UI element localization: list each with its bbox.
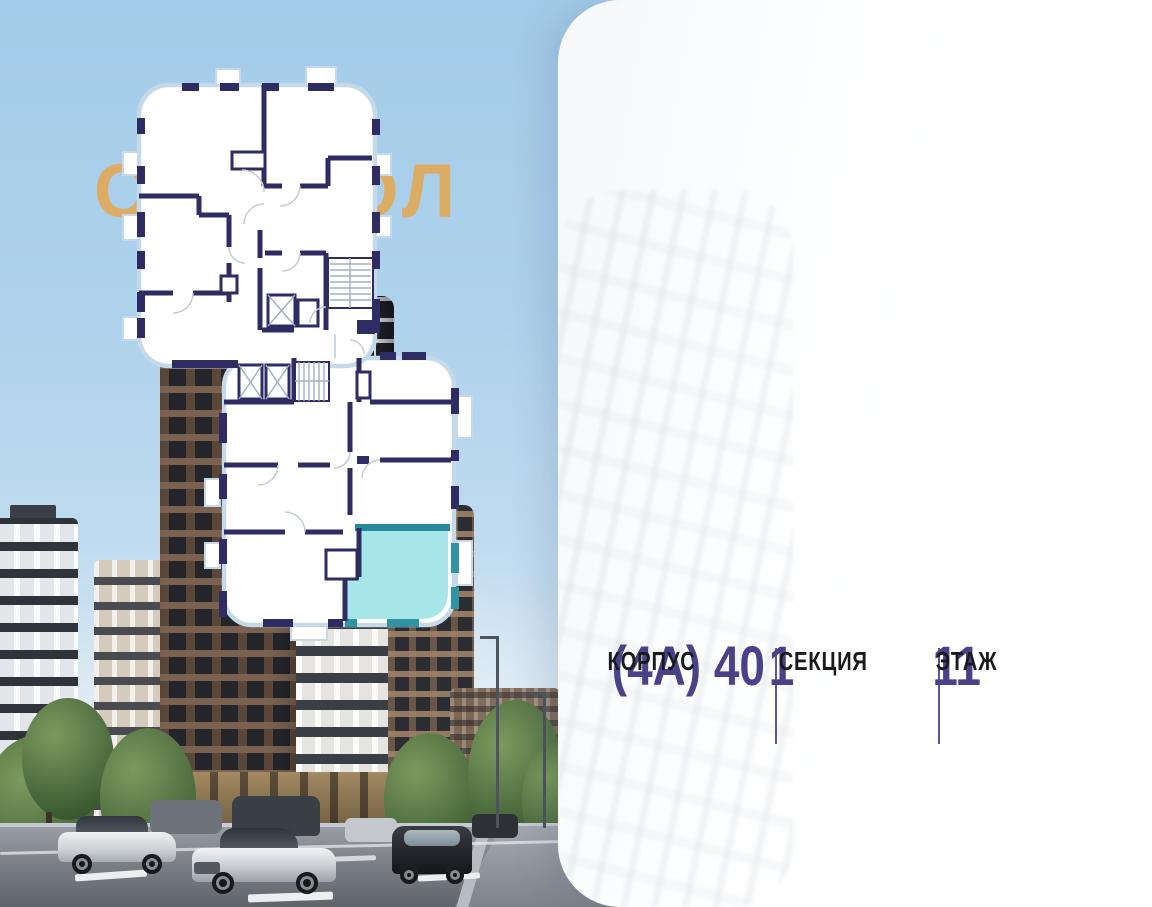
car-windshield <box>404 830 460 846</box>
building-label: КОРПУС <box>607 646 695 677</box>
car-dark-minivan <box>392 822 472 884</box>
car-wheel <box>400 866 418 884</box>
shaft-box <box>357 372 370 398</box>
car-wheel <box>72 854 92 874</box>
closet-box <box>232 152 265 169</box>
stairs-icon <box>295 362 329 401</box>
shaft-box <box>326 550 357 579</box>
shaft-box <box>221 276 237 293</box>
car-grille <box>194 862 220 874</box>
floor-plan <box>117 55 482 655</box>
car-wheel <box>212 872 234 894</box>
car-white-suv <box>58 814 176 872</box>
car-wheel <box>446 866 464 884</box>
street-lamp-arm <box>529 692 546 695</box>
details-panel <box>558 0 1152 907</box>
street-lamp-pole <box>496 636 499 828</box>
apartment-card: СИМВОЛ <box>0 0 1152 907</box>
street-lamp-arm <box>480 636 499 639</box>
car-wheel <box>296 872 318 894</box>
car-distant-dark <box>472 814 518 838</box>
floor-label: ЭТАЖ <box>936 646 998 677</box>
car-silver-sedan <box>192 828 336 894</box>
car-distant-light <box>345 818 397 842</box>
stairs-icon <box>328 258 373 308</box>
car-wheel <box>142 854 162 874</box>
ghost-watermark <box>558 190 793 907</box>
street-lamp-pole <box>543 692 546 828</box>
plan-upper-section <box>139 85 375 366</box>
section-label: СЕКЦИЯ <box>779 646 868 677</box>
